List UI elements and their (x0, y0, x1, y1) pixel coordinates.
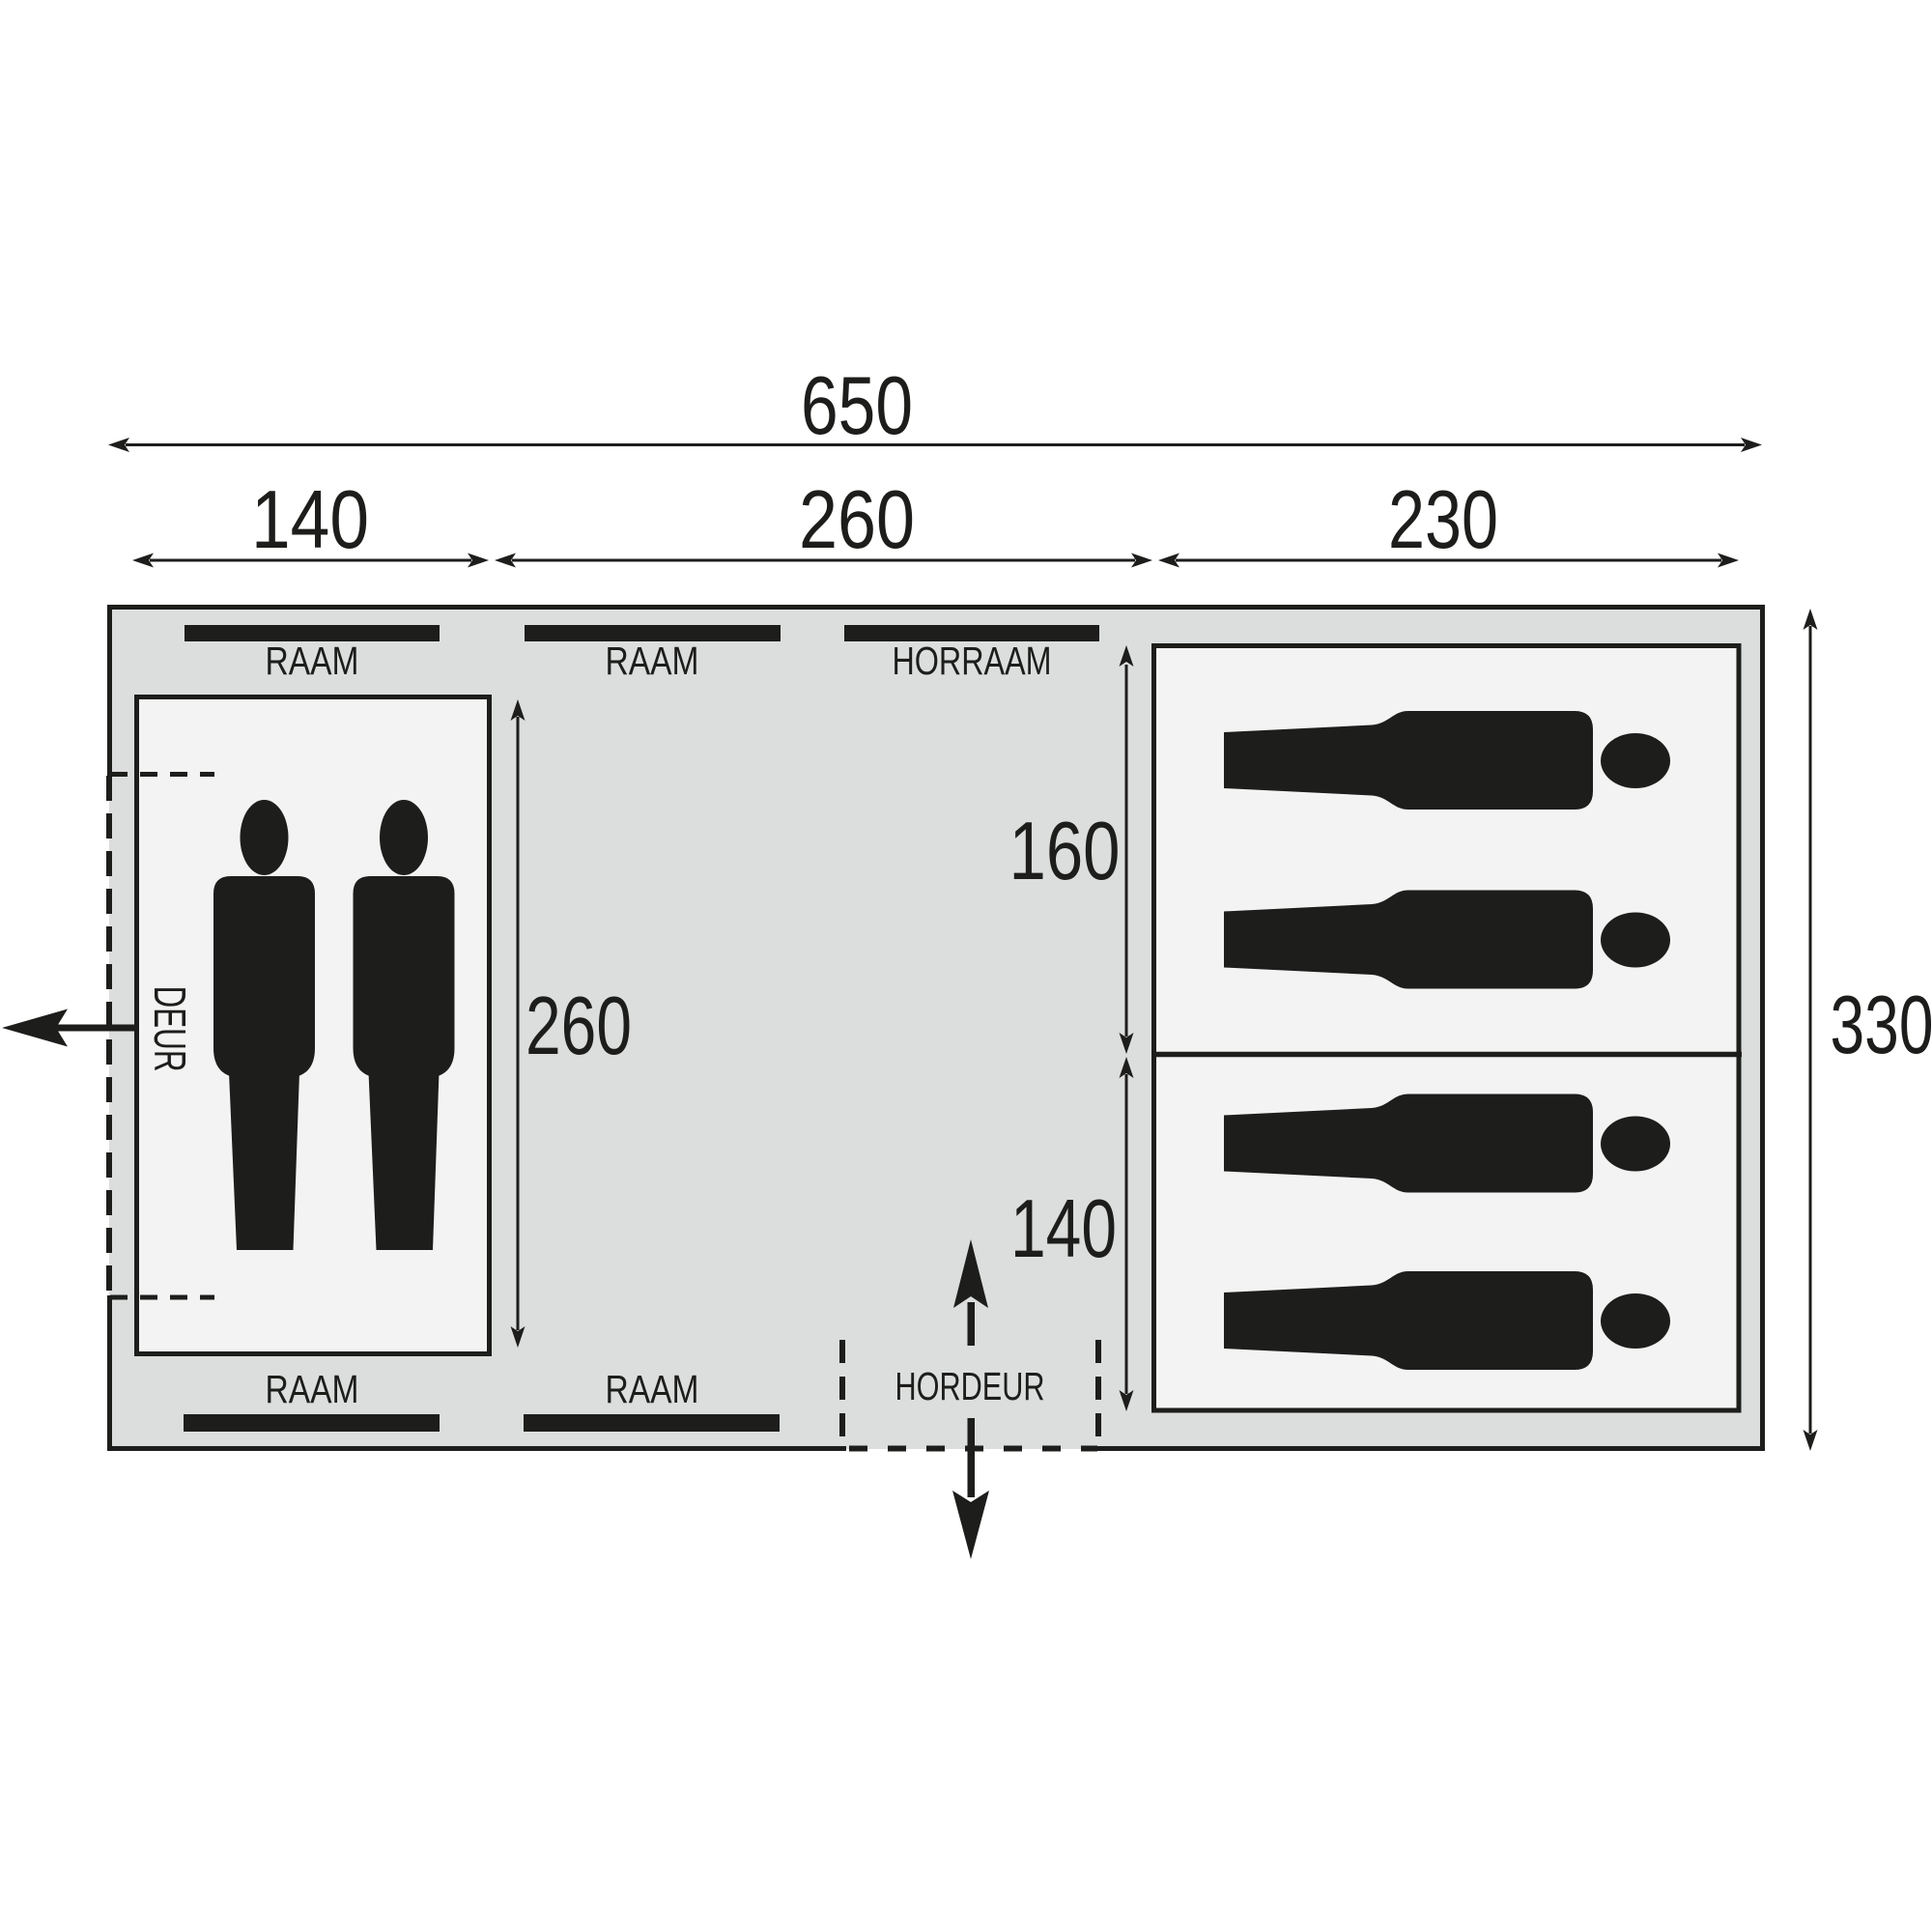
svg-text:HORDEUR: HORDEUR (895, 1364, 1045, 1408)
svg-text:140: 140 (251, 474, 369, 566)
svg-text:230: 230 (1388, 474, 1498, 566)
svg-text:HORRAAM: HORRAAM (893, 639, 1052, 683)
svg-text:650: 650 (801, 360, 913, 452)
svg-text:RAAM: RAAM (266, 639, 359, 683)
svg-text:DEUR: DEUR (145, 986, 195, 1072)
svg-text:330: 330 (1831, 980, 1932, 1071)
svg-text:260: 260 (526, 980, 632, 1072)
svg-text:140: 140 (1010, 1183, 1117, 1275)
svg-text:RAAM: RAAM (606, 1367, 699, 1411)
svg-text:RAAM: RAAM (266, 1367, 359, 1411)
svg-text:260: 260 (799, 474, 915, 566)
svg-text:RAAM: RAAM (606, 639, 699, 683)
svg-text:160: 160 (1009, 806, 1121, 897)
